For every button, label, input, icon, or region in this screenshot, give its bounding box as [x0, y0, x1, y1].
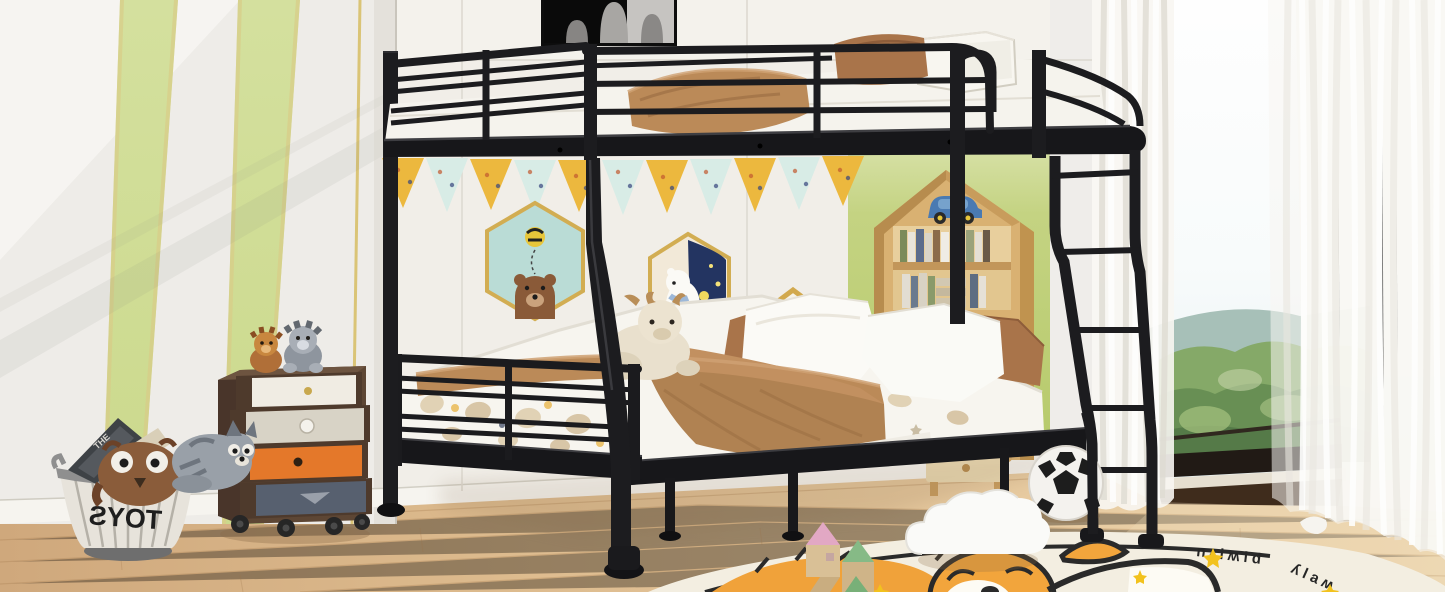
svg-text:TOYS: TOYS: [88, 500, 163, 535]
